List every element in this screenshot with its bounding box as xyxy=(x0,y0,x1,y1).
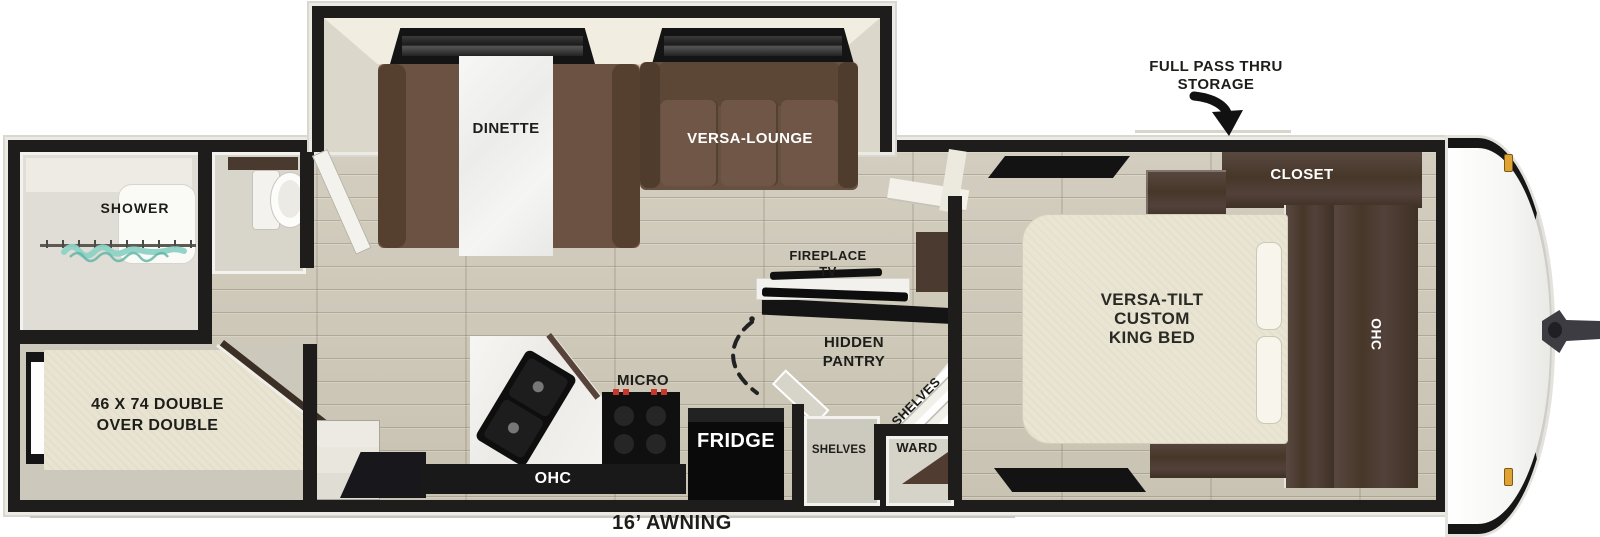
annotations-overlay xyxy=(0,0,1600,537)
door-swing-path xyxy=(733,322,757,393)
floorplan: DINETTE VERSA-LOUNGE SHOWER 46 X 74 DOUB… xyxy=(0,0,1600,537)
storage-arrow-head-icon xyxy=(1212,110,1243,136)
